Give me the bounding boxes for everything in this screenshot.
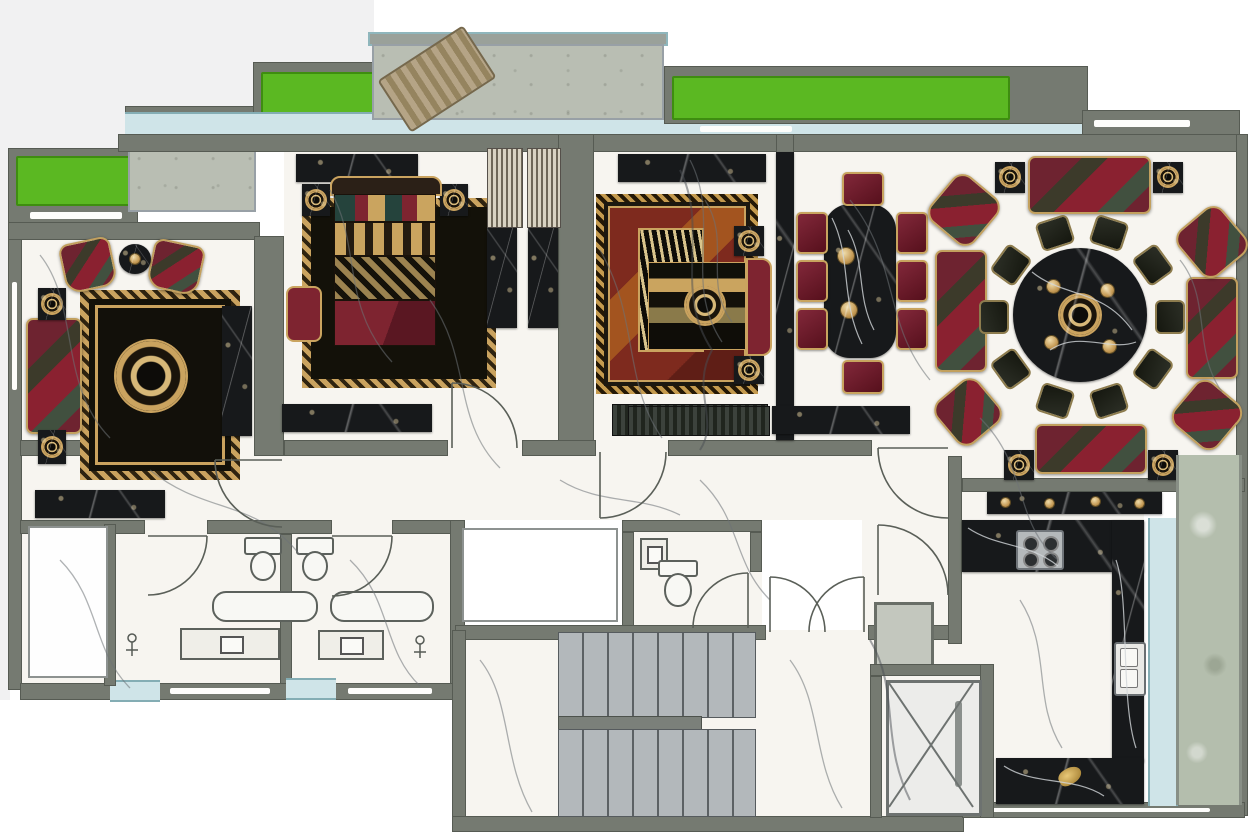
green-planter-left	[16, 156, 130, 206]
bath1-vanity	[180, 628, 280, 660]
wall-living-top	[8, 222, 260, 240]
bath2-vanity	[318, 630, 384, 660]
bed2-nightstand-top	[734, 226, 764, 256]
majlis-side-table-2	[1153, 162, 1183, 193]
utility-room	[462, 528, 618, 622]
bath2-toilet-bowl	[302, 551, 328, 581]
storage-closet	[28, 526, 108, 678]
majlis-chair	[979, 300, 1009, 334]
dining-chair-l3	[796, 308, 828, 350]
dining-chair-bottom	[842, 360, 884, 394]
living-room-rug	[80, 290, 240, 480]
master-headboard	[330, 176, 442, 196]
kitchen-double-sink	[1114, 642, 1146, 696]
bath-window-2	[286, 678, 336, 700]
wall-stairhall-left	[452, 630, 466, 832]
kitchen-balcony-door	[1148, 518, 1178, 806]
dining-chair-r1	[896, 212, 928, 254]
powder-toilet-bowl	[664, 573, 692, 607]
majlis-sofa-bottom	[1035, 424, 1147, 474]
bed2-bed	[648, 258, 768, 352]
dining-tv-wall	[776, 152, 794, 440]
window-slit-3	[700, 126, 792, 132]
wall-stairhall-bottom	[452, 816, 964, 832]
master-dresser-2	[528, 228, 558, 328]
wall-bath-top-b	[207, 520, 332, 534]
elevator-car	[886, 680, 982, 816]
master-nightstand-left	[302, 184, 330, 216]
wall-top	[118, 134, 1245, 152]
stair-flight-upper	[558, 632, 756, 718]
master-wardrobe-2	[527, 148, 561, 228]
bath2-bathtub	[330, 591, 434, 622]
dining-chair-r3	[896, 308, 928, 350]
majlis-round-table	[1013, 248, 1147, 382]
bath1-bathtub	[212, 591, 318, 622]
dining-chair-top	[842, 172, 884, 206]
dining-table	[824, 204, 896, 358]
window-slit-5	[170, 688, 270, 694]
master-dresser-1	[487, 228, 517, 328]
bed2-media-console	[618, 154, 766, 182]
wall-hall-c	[522, 440, 596, 456]
majlis-side-table-1	[995, 162, 1025, 193]
majlis-sofa-top	[1028, 156, 1151, 214]
majlis-chair	[1155, 300, 1185, 334]
floor-plan: ✦	[0, 0, 1248, 832]
kitchen-bar-console	[987, 492, 1162, 514]
window-slit-7	[980, 808, 1210, 812]
living-square-side-table-2	[38, 430, 66, 464]
master-nightstand-right	[440, 184, 468, 216]
stair-flight-lower	[558, 729, 756, 817]
dining-chair-r2	[896, 260, 928, 302]
dining-chair-l1	[796, 212, 828, 254]
wall-living-bed1	[254, 236, 284, 456]
wall-powder-right	[750, 532, 762, 572]
wall-bed1-bed2	[558, 134, 594, 456]
master-wardrobe-1	[487, 148, 523, 228]
master-bed	[330, 176, 438, 346]
living-square-side-table-1	[38, 288, 66, 320]
wall-powder-top	[622, 520, 762, 532]
bath1-toilet-bowl	[250, 551, 276, 581]
service-balcony	[1176, 455, 1242, 805]
window-slit-1	[30, 212, 122, 219]
master-side-bench	[286, 286, 322, 342]
living-round-side-table	[119, 244, 151, 274]
bath-window-1	[110, 680, 160, 702]
master-console-bottom	[282, 404, 432, 432]
majlis-side-table-4	[1148, 450, 1178, 480]
elevator-shaft-top	[870, 664, 994, 676]
window-slit-left	[12, 282, 17, 390]
elevator-shaft-left	[870, 676, 882, 818]
wall-hall-b	[284, 440, 448, 456]
living-sofa	[26, 318, 82, 434]
bed2-nightstand-bottom	[734, 356, 764, 384]
window-slit-6	[348, 688, 432, 694]
service-duct	[874, 602, 934, 670]
living-console-right	[222, 306, 252, 436]
kitchen-gas-hob	[1016, 530, 1064, 570]
majlis-sofa-right	[1186, 277, 1238, 379]
hallway-bench	[628, 406, 770, 436]
window-slit-4	[1094, 120, 1190, 127]
bed2-headboard	[746, 258, 772, 356]
wall-hall-d	[668, 440, 872, 456]
hallway-console	[772, 406, 910, 434]
elevator-shaft-right	[980, 664, 994, 818]
living-console-bottom	[35, 490, 165, 518]
kitchen-counter-right	[1112, 520, 1144, 762]
dining-chair-l2	[796, 260, 828, 302]
green-planter-right	[672, 76, 1010, 120]
wall-powder-left	[622, 532, 634, 628]
majlis-side-table-3	[1004, 450, 1034, 480]
wall-corridor-kitchen	[948, 456, 962, 644]
